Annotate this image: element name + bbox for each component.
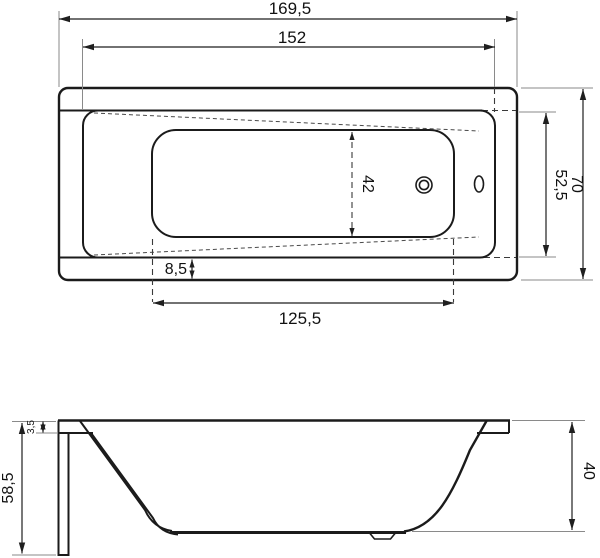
technical-drawing-svg: 169,5 152 52,5 70 42 8,5 125,5 <box>0 0 600 558</box>
dim-label-overall-width: 70 <box>568 175 585 193</box>
drain-fitting <box>370 534 395 540</box>
side-view: 58,5 3,5 40 <box>0 420 597 555</box>
dim-label-inner-width: 52,5 <box>552 169 569 200</box>
basin-opening-outline <box>83 111 495 258</box>
left-wall-outer-line <box>91 433 178 535</box>
dim-label-rim-to-edge: 8,5 <box>165 261 187 278</box>
dim-label-overall-length: 169,5 <box>269 0 312 18</box>
dim-label-rim-thickness: 3,5 <box>26 420 37 434</box>
dim-label-inner-depth: 40 <box>580 462 597 480</box>
dim-label-overall-height: 58,5 <box>0 472 17 503</box>
basin-floor-outline <box>152 130 454 237</box>
dim-label-bottom-width: 42 <box>359 175 376 193</box>
drain-inner-circle <box>419 180 428 189</box>
dim-label-inner-length: 152 <box>278 28 306 47</box>
overflow-hole <box>475 176 484 192</box>
bathtub-dimension-drawing: 169,5 152 52,5 70 42 8,5 125,5 <box>0 0 600 558</box>
dim-label-bottom-length: 125,5 <box>279 309 322 328</box>
taper-hidden-line-top <box>94 113 479 131</box>
drain-outer-circle <box>416 177 432 193</box>
top-view: 169,5 152 52,5 70 42 8,5 125,5 <box>59 0 593 328</box>
taper-hidden-line-bottom <box>94 237 479 255</box>
tub-outer-outline <box>59 88 517 280</box>
right-wall-line <box>404 421 487 532</box>
